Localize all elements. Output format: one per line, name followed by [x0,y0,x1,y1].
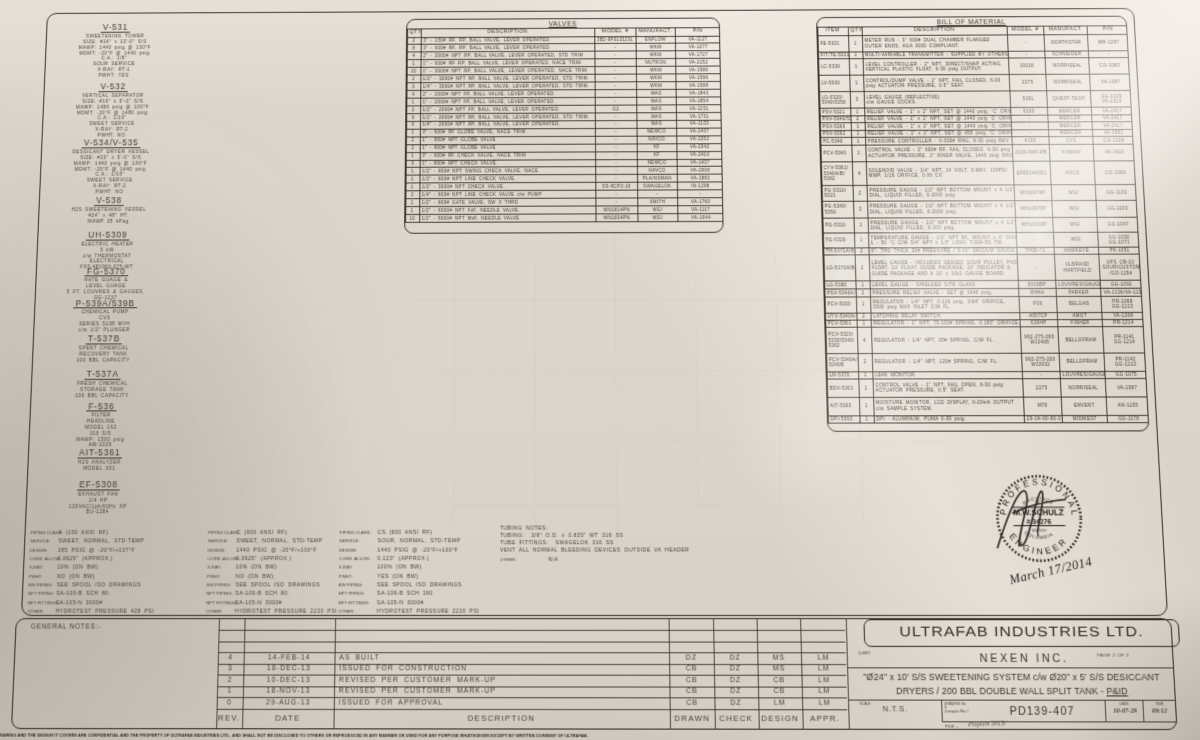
svg-text:BRITISH: BRITISH [1032,528,1047,532]
